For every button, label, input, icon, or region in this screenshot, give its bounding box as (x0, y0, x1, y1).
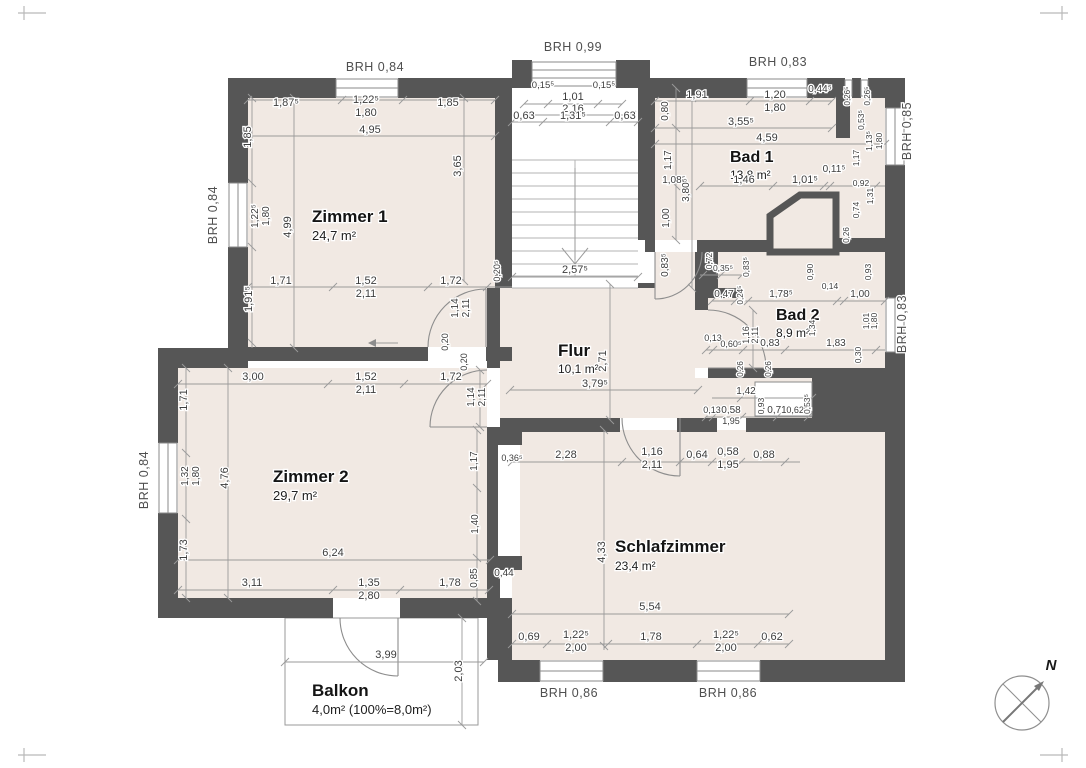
dim-label: 4,33 (596, 541, 608, 562)
dim-label: 2,00 (715, 642, 736, 654)
dim-label: 2,80 (358, 590, 379, 602)
dim-label: 0,90 (805, 263, 815, 280)
dim-label: 1,17 (469, 451, 480, 471)
dim-label: 3,65 (452, 155, 464, 176)
dim-label: 1,46 (733, 174, 754, 186)
area-label: 10,1 m² (558, 362, 599, 376)
dim-label: 1,80 (355, 107, 376, 119)
dim-label: 0,83⁵ (660, 253, 671, 277)
area-label: 24,7 m² (312, 228, 357, 243)
dim-label: 0,63 (513, 110, 534, 122)
dim-label: 3,00 (242, 371, 263, 383)
dim-label: 1,00 (661, 208, 672, 228)
dim-label: 1,80 (261, 206, 272, 226)
dim-label: 2,11 (461, 298, 472, 317)
dim-label: 2,11 (750, 327, 760, 344)
dim-label: 0,60⁵ (720, 339, 742, 349)
dim-label: 2,03 (453, 660, 465, 681)
compass-label: N (1046, 657, 1058, 674)
dim-label: 0,44⁵ (808, 84, 832, 95)
room-label: Flur (558, 341, 590, 360)
dim-label: 2,28 (555, 449, 576, 461)
dim-label: 1,80 (869, 312, 879, 329)
dim-label: 0,26 (736, 361, 745, 377)
brh-label: BRH 0,86 (699, 686, 757, 700)
brh-label: BRH 0,86 (540, 686, 598, 700)
dim-label: 1,00 (850, 289, 870, 300)
dim-label: 3,79⁵ (582, 378, 608, 390)
dim-label: 1,17 (851, 149, 861, 166)
dim-label: 2,11 (356, 288, 377, 300)
dim-label: 0,13 (704, 333, 722, 343)
dim-label: 0,15⁵ (532, 80, 554, 91)
dim-label: 2,11 (356, 384, 377, 396)
area-label: 8,9 m² (776, 326, 810, 340)
dim-label: 1,22⁵ (713, 629, 739, 641)
dim-label: 1,42 (736, 386, 756, 397)
compass-rose (995, 676, 1049, 730)
dim-label: 0,69 (518, 631, 539, 643)
dim-label: 1,85 (437, 97, 458, 109)
dim-label: 1,01⁵ (792, 174, 818, 186)
dim-label: 0,83⁵ (741, 257, 751, 277)
dim-label: 2,11 (642, 459, 663, 471)
dim-label: 2,57⁵ (562, 264, 588, 276)
dim-label: 1,34 (807, 319, 817, 336)
dim-label: 1,78 (439, 577, 460, 589)
dim-label: 0,58 (721, 405, 741, 416)
dim-label: 1,22⁵ (250, 204, 261, 228)
dim-label: 1,80 (874, 132, 884, 149)
dim-label: 0,74 (851, 201, 861, 218)
dim-label: 4,76 (219, 467, 231, 488)
dim-label: 0,44 (494, 568, 514, 579)
dim-label: 1,52 (355, 275, 376, 287)
dim-label: 0,64 (686, 449, 707, 461)
brh-label: BRH 0,84 (206, 186, 220, 244)
dim-label: 1,22⁵ (353, 94, 379, 106)
dim-label: 0,13 (703, 405, 721, 415)
dim-label: 0,26⁵ (863, 87, 872, 106)
room-label: Zimmer 1 (312, 207, 388, 226)
room-label: Schlafzimmer (615, 537, 726, 556)
dim-label: 1,87⁵ (273, 97, 299, 109)
dim-label: 1,71 (178, 389, 190, 410)
dim-label: 1,73 (178, 539, 190, 560)
room-label: Zimmer 2 (273, 467, 349, 486)
dim-label: 1,14 (450, 298, 461, 318)
floor-plan-drawing: Zimmer 124,7 m²Zimmer 229,7 m²Flur10,1 m… (0, 0, 1086, 768)
dim-label: 0,80 (660, 101, 671, 121)
floor-plan-page: Zimmer 124,7 m²Zimmer 229,7 m²Flur10,1 m… (0, 0, 1086, 768)
dim-label: 1,14 (466, 387, 477, 407)
dim-label: 1,22⁵ (563, 629, 589, 641)
door-balkon (340, 618, 398, 676)
dim-label: 1,85 (242, 126, 254, 147)
dim-label: 0,20⁵ (492, 260, 502, 282)
brh-label: BRH 0,85 (900, 102, 914, 160)
dim-label: 4,95 (359, 124, 380, 136)
dim-label: 0,36⁵ (501, 453, 523, 463)
dim-label: 1,17 (663, 150, 674, 170)
dim-label: 6,24 (322, 547, 343, 559)
dim-label: 0,26 (842, 227, 851, 243)
brh-label: BRH 0,83 (749, 55, 807, 69)
dim-label: 0,71 (767, 405, 787, 416)
dim-label: 0,20 (459, 353, 469, 371)
dim-label: 1,78⁵ (769, 289, 793, 300)
dim-label: 0,58 (717, 446, 738, 458)
dim-label: 0,53⁵ (856, 110, 866, 130)
dim-label: 0,26 (764, 361, 773, 377)
dim-label: 1,16 (641, 446, 662, 458)
dim-label: 1,80 (764, 102, 785, 114)
dim-label: 1,40 (470, 514, 481, 534)
dim-label: 3,11 (242, 577, 263, 589)
dim-label: 0,26⁵ (843, 87, 852, 106)
dim-label: 0,92 (853, 178, 870, 188)
dim-label: 0,63 (614, 110, 635, 122)
dim-label: 0,14 (822, 281, 839, 291)
dim-label: 1,91⁵ (243, 286, 255, 312)
dim-label: 1,32 (180, 466, 191, 486)
dim-label: 0,93 (863, 263, 873, 280)
area-label: 4,0m² (100%=8,0m²) (312, 702, 432, 717)
dim-label: 0,47 (714, 289, 734, 300)
dim-label: 1,78 (640, 631, 661, 643)
room-label: Bad 1 (730, 149, 774, 166)
dim-label: 1,83 (826, 338, 846, 349)
dim-label: 1,80 (191, 466, 202, 486)
brh-label: BRH 0,83 (895, 295, 909, 353)
dim-label: 1,91 (686, 89, 707, 101)
dim-label: 1,35 (358, 577, 379, 589)
dim-label: 0,83 (760, 338, 780, 349)
dim-label: 1,72 (440, 275, 461, 287)
dim-label: 4,59 (756, 132, 777, 144)
dim-label: 0,93 (756, 397, 766, 414)
brh-label: BRH 0,99 (544, 40, 602, 54)
dim-label: 1,95 (722, 416, 740, 426)
dim-label: 0,15⁵ (593, 80, 615, 91)
dim-label: 0,53⁵ (802, 394, 812, 414)
dim-label: 3,55⁵ (728, 116, 754, 128)
dim-label: 5,54 (639, 601, 660, 613)
dim-label: 0,62 (761, 631, 782, 643)
dim-label: 1,13⁵ (864, 131, 874, 151)
dim-label: 1,52 (355, 371, 376, 383)
dim-label: 0,30 (853, 346, 863, 363)
dim-label: 1,71 (270, 275, 291, 287)
brh-label: BRH 0,84 (346, 60, 404, 74)
dim-label: 1,31⁵ (560, 110, 586, 122)
dim-label: 1,01 (562, 91, 583, 103)
dim-label: 0,24⁵ (736, 286, 745, 305)
dim-label: 1,20 (764, 89, 785, 101)
dim-label: 1,72 (440, 371, 461, 383)
area-label: 23,4 m² (615, 559, 656, 573)
dim-label: 1,31 (865, 187, 875, 204)
dim-label: 3,80⁵ (681, 178, 692, 202)
dim-label: 1,95 (717, 459, 738, 471)
dim-label: 0,85 (469, 568, 480, 588)
dim-label: 3,99 (375, 649, 396, 661)
dim-label: 2,11 (477, 387, 488, 406)
brh-label: BRH 0,84 (137, 451, 151, 509)
dim-label: 0,11⁵ (823, 164, 846, 175)
dim-label: 0,20 (440, 333, 450, 351)
dim-label: 0,35⁵ (713, 263, 733, 273)
dim-label: 4,99 (282, 216, 294, 237)
dim-label: 2,00 (565, 642, 586, 654)
room-label: Balkon (312, 681, 369, 700)
area-label: 29,7 m² (273, 488, 318, 503)
dim-label: 0,88 (753, 449, 774, 461)
dim-label: 2,71 (597, 350, 609, 371)
